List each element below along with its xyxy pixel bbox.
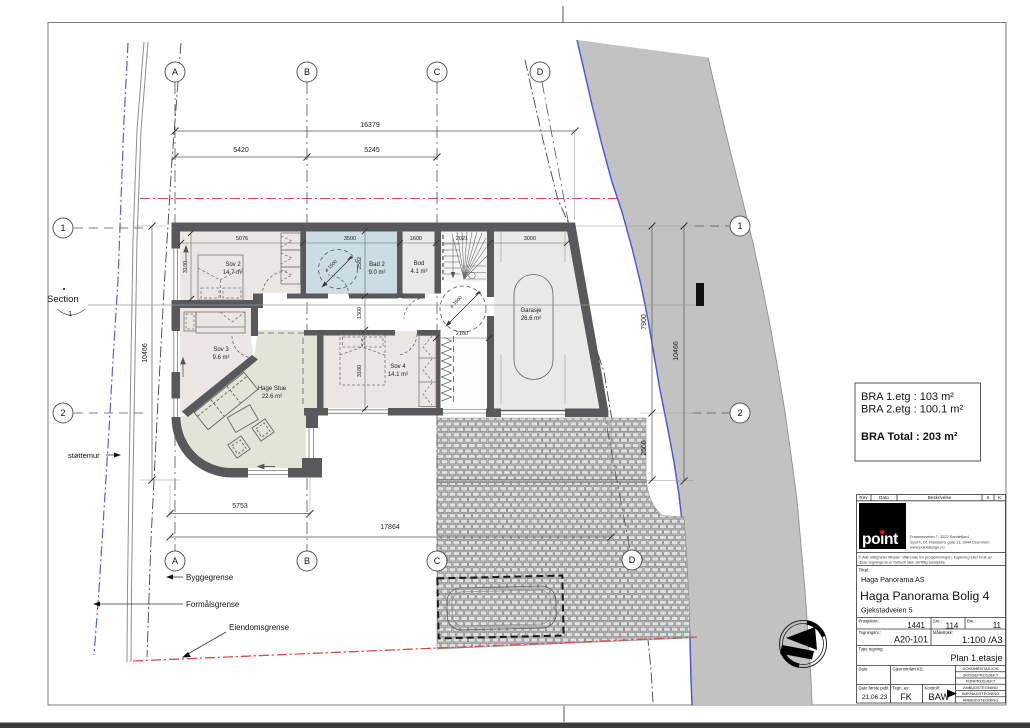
svg-text:Type tegning:: Type tegning: — [859, 647, 884, 652]
svg-text:BRA 1.etg : 103 m²: BRA 1.etg : 103 m² — [861, 391, 954, 403]
svg-text:22.6 m²: 22.6 m² — [262, 394, 282, 400]
svg-text:Rev: Rev — [859, 495, 868, 500]
svg-text:SØKNADSTEGNING: SØKNADSTEGNING — [962, 691, 1000, 696]
svg-text:1: 1 — [68, 309, 72, 318]
svg-text:2: 2 — [60, 408, 65, 418]
svg-text:A: A — [172, 67, 178, 77]
svg-text:FK: FK — [900, 692, 912, 702]
svg-text:10466: 10466 — [142, 343, 149, 363]
svg-text:5753: 5753 — [232, 503, 248, 510]
svg-text:B: B — [304, 67, 310, 77]
svg-text:2021: 2021 — [456, 236, 468, 242]
svg-text:Dato: Dato — [879, 495, 889, 500]
svg-text:SKISSEPROSJEKT: SKISSEPROSJEKT — [963, 672, 999, 677]
svg-text:5245: 5245 — [364, 147, 380, 154]
svg-text:DOKUMENTASJON: DOKUMENTASJON — [963, 666, 999, 671]
svg-text:Sov 2: Sov 2 — [225, 262, 241, 268]
svg-text:3100: 3100 — [357, 365, 363, 377]
svg-text:Haga Panorama AS: Haga Panorama AS — [861, 575, 925, 584]
svg-text:Dato: Dato — [859, 667, 869, 672]
svg-text:Tittel:: Tittel: — [859, 568, 870, 573]
svg-text:Formålsgrense: Formålsgrense — [186, 600, 240, 609]
svg-text:1300: 1300 — [357, 307, 363, 319]
svg-text:S: S — [986, 495, 989, 500]
svg-text:SporX, Dr. Hansteins gate 13,: SporX, Dr. Hansteins gate 13, 3044 Dramm… — [910, 539, 989, 544]
svg-text:4.1 m²: 4.1 m² — [410, 269, 427, 275]
svg-text:9.6 m²: 9.6 m² — [212, 355, 229, 361]
svg-text:14.7 m²: 14.7 m² — [223, 270, 243, 276]
svg-text:1600: 1600 — [410, 236, 422, 242]
svg-text:11: 11 — [993, 621, 1002, 630]
svg-text:Gjennomført KS:: Gjennomført KS: — [893, 667, 924, 672]
svg-text:Plan 1.etasje: Plan 1.etasje — [950, 653, 1002, 663]
svg-text:2582: 2582 — [357, 257, 363, 269]
svg-text:9.0 m²: 9.0 m² — [368, 270, 385, 276]
svg-text:2100: 2100 — [456, 331, 468, 337]
svg-text:7900: 7900 — [641, 314, 648, 330]
svg-text:3000: 3000 — [524, 236, 536, 242]
svg-text:3100: 3100 — [183, 261, 189, 273]
svg-text:www.pointdesign.no: www.pointdesign.no — [910, 545, 945, 550]
svg-text:støttemur: støttemur — [68, 451, 100, 460]
svg-text:1: 1 — [737, 221, 742, 231]
svg-text:C: C — [434, 556, 441, 566]
svg-text:Beskrivelse: Beskrivelse — [928, 495, 952, 500]
svg-text:Hage Stue: Hage Stue — [258, 386, 287, 392]
svg-text:disse tegningene er forbudt ut: disse tegningene er forbudt uten skriftl… — [859, 559, 947, 564]
svg-text:Målestokk:: Målestokk: — [933, 630, 953, 635]
svg-text:Haga Panorama Bolig 4: Haga Panorama Bolig 4 — [860, 589, 990, 603]
svg-text:Sov 4: Sov 4 — [390, 364, 406, 370]
svg-text:B: B — [304, 556, 310, 566]
svg-text:1:100 /A3: 1:100 /A3 — [962, 635, 1003, 646]
svg-text:Kontroll:: Kontroll: — [925, 686, 940, 691]
svg-text:Sov 3: Sov 3 — [213, 347, 229, 353]
svg-text:Dato første publ.:: Dato første publ.: — [859, 686, 891, 691]
svg-text:Garasje: Garasje — [520, 308, 542, 314]
svg-text:Byggegrense: Byggegrense — [186, 573, 234, 582]
svg-text:1: 1 — [60, 223, 65, 233]
svg-text:A: A — [172, 556, 178, 566]
svg-text:Bod: Bod — [414, 261, 425, 267]
svg-text:17864: 17864 — [380, 524, 400, 531]
svg-text:Eiendomsgrense: Eiendomsgrense — [229, 623, 290, 632]
svg-text:C: C — [434, 67, 441, 77]
svg-text:BRA 2.etg : 100.1 m²: BRA 2.etg : 100.1 m² — [861, 404, 963, 416]
svg-text:Prosjektnr.:: Prosjektnr.: — [859, 619, 880, 624]
svg-text:5076: 5076 — [236, 236, 248, 242]
svg-text:3500: 3500 — [344, 236, 356, 242]
svg-text:ANBUDSTEGNING: ANBUDSTEGNING — [963, 685, 998, 690]
svg-text:21.06.23: 21.06.23 — [862, 694, 888, 701]
svg-text:Bnr.:: Bnr.: — [967, 619, 976, 624]
svg-text:BRA Total : 203 m²: BRA Total : 203 m² — [861, 431, 958, 443]
svg-text:BAW: BAW — [928, 692, 949, 703]
svg-text:Framnesveien 7, 3222 Sandefjor: Framnesveien 7, 3222 Sandefjord — [910, 534, 969, 539]
svg-text:Bad 2: Bad 2 — [369, 262, 385, 268]
svg-text:2: 2 — [737, 408, 742, 418]
svg-text:ARBEIDSTEGNING: ARBEIDSTEGNING — [963, 697, 999, 702]
svg-text:D: D — [629, 555, 636, 565]
svg-text:10466: 10466 — [673, 341, 680, 361]
svg-text:16379: 16379 — [360, 122, 380, 129]
svg-text:26.6 m²: 26.6 m² — [521, 316, 541, 322]
svg-text:D: D — [537, 67, 544, 77]
svg-text:14.1 m²: 14.1 m² — [388, 372, 408, 378]
svg-text:5420: 5420 — [233, 147, 249, 154]
svg-text:1441: 1441 — [907, 621, 925, 630]
svg-text:FORPROSJEKT: FORPROSJEKT — [966, 679, 996, 684]
svg-text:2566: 2566 — [641, 440, 648, 456]
svg-text:Tegn. av:: Tegn. av: — [893, 686, 910, 691]
svg-text:Snr.:: Snr.: — [933, 619, 942, 624]
svg-text:Section: Section — [47, 294, 79, 305]
svg-text:A20-101: A20-101 — [894, 635, 928, 645]
svg-text:Gjekstadveien 5: Gjekstadveien 5 — [861, 606, 913, 615]
svg-text:Tegningsnr.:: Tegningsnr.: — [859, 630, 882, 635]
